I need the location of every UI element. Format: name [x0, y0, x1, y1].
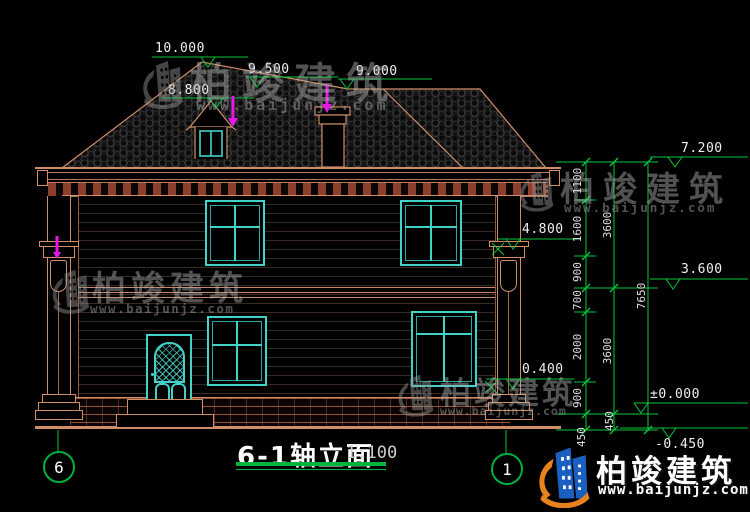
- door-knob: [151, 373, 154, 376]
- title-underline-thick: [236, 462, 386, 466]
- watermark-url: www.baijunjz.com: [564, 200, 716, 215]
- brand-building-icon: [48, 259, 92, 319]
- window-mullion-v: [430, 205, 432, 261]
- door-arch-lattice-panel: [154, 342, 185, 383]
- watermark-url: www.baijunjz.com: [440, 404, 567, 418]
- elevation-label-eave: 7.200: [681, 141, 723, 156]
- door-step-lower: [116, 414, 214, 427]
- window-mullion-v: [236, 321, 238, 381]
- brand-building-icon: [394, 364, 436, 422]
- axis-bubble-1: 1: [491, 453, 523, 485]
- axis-bubble-1-label: 1: [502, 460, 512, 479]
- dim-middle-450: 450: [603, 399, 617, 443]
- elevation-label-ground: ±0.000: [650, 387, 700, 402]
- window-second-floor-right: [400, 200, 462, 266]
- eave-fascia-line-1: [40, 172, 556, 173]
- elevation-label-capital: 4.800: [522, 222, 564, 237]
- logo-url: www.baijunjz.com: [598, 482, 749, 498]
- ground-line: [35, 426, 561, 429]
- dim-inner-2000: 2000: [571, 325, 585, 369]
- eave-corbel-left: [37, 170, 48, 186]
- brand-building-icon: [138, 54, 186, 110]
- axis-bubble-6: 6: [43, 451, 75, 483]
- marker-line-0000: [634, 403, 748, 413]
- watermark-url: www.baijunjz.com: [90, 301, 234, 316]
- eave-top-line: [35, 167, 561, 169]
- door-step-upper: [127, 399, 203, 415]
- elevation-label-second-floor: 3.600: [681, 262, 723, 277]
- brand-building-icon: [516, 162, 556, 216]
- dim-middle-3600b: 3600: [601, 329, 615, 373]
- title-underline-thin: [236, 469, 386, 470]
- right-column-emblem: [500, 260, 517, 292]
- brand-logo: 柏竣建筑 www.baijunjz.com: [532, 440, 594, 512]
- watermark-url: www.baijunjz.com: [196, 96, 389, 114]
- eave-fascia-line-2: [40, 179, 556, 180]
- window-first-floor-left: [207, 316, 267, 386]
- brand-logo-icon: [532, 440, 594, 508]
- right-column-capital-block: [493, 246, 525, 258]
- window-mullion-v: [234, 205, 236, 261]
- left-column-capital-block: [43, 246, 75, 258]
- dim-inner-700: 700: [571, 278, 585, 322]
- marker-line-3600: [650, 279, 748, 289]
- axis-bubble-6-label: 6: [54, 458, 64, 477]
- window-second-floor-left: [205, 200, 265, 266]
- left-column-base: [35, 410, 83, 420]
- cad-elevation-canvas: 10.000 9.500 9.000 8.800 7.200 4.800 3.6…: [0, 0, 750, 512]
- dim-overall-7650: 7650: [635, 274, 649, 318]
- drawing-scale: 1:100: [346, 443, 397, 463]
